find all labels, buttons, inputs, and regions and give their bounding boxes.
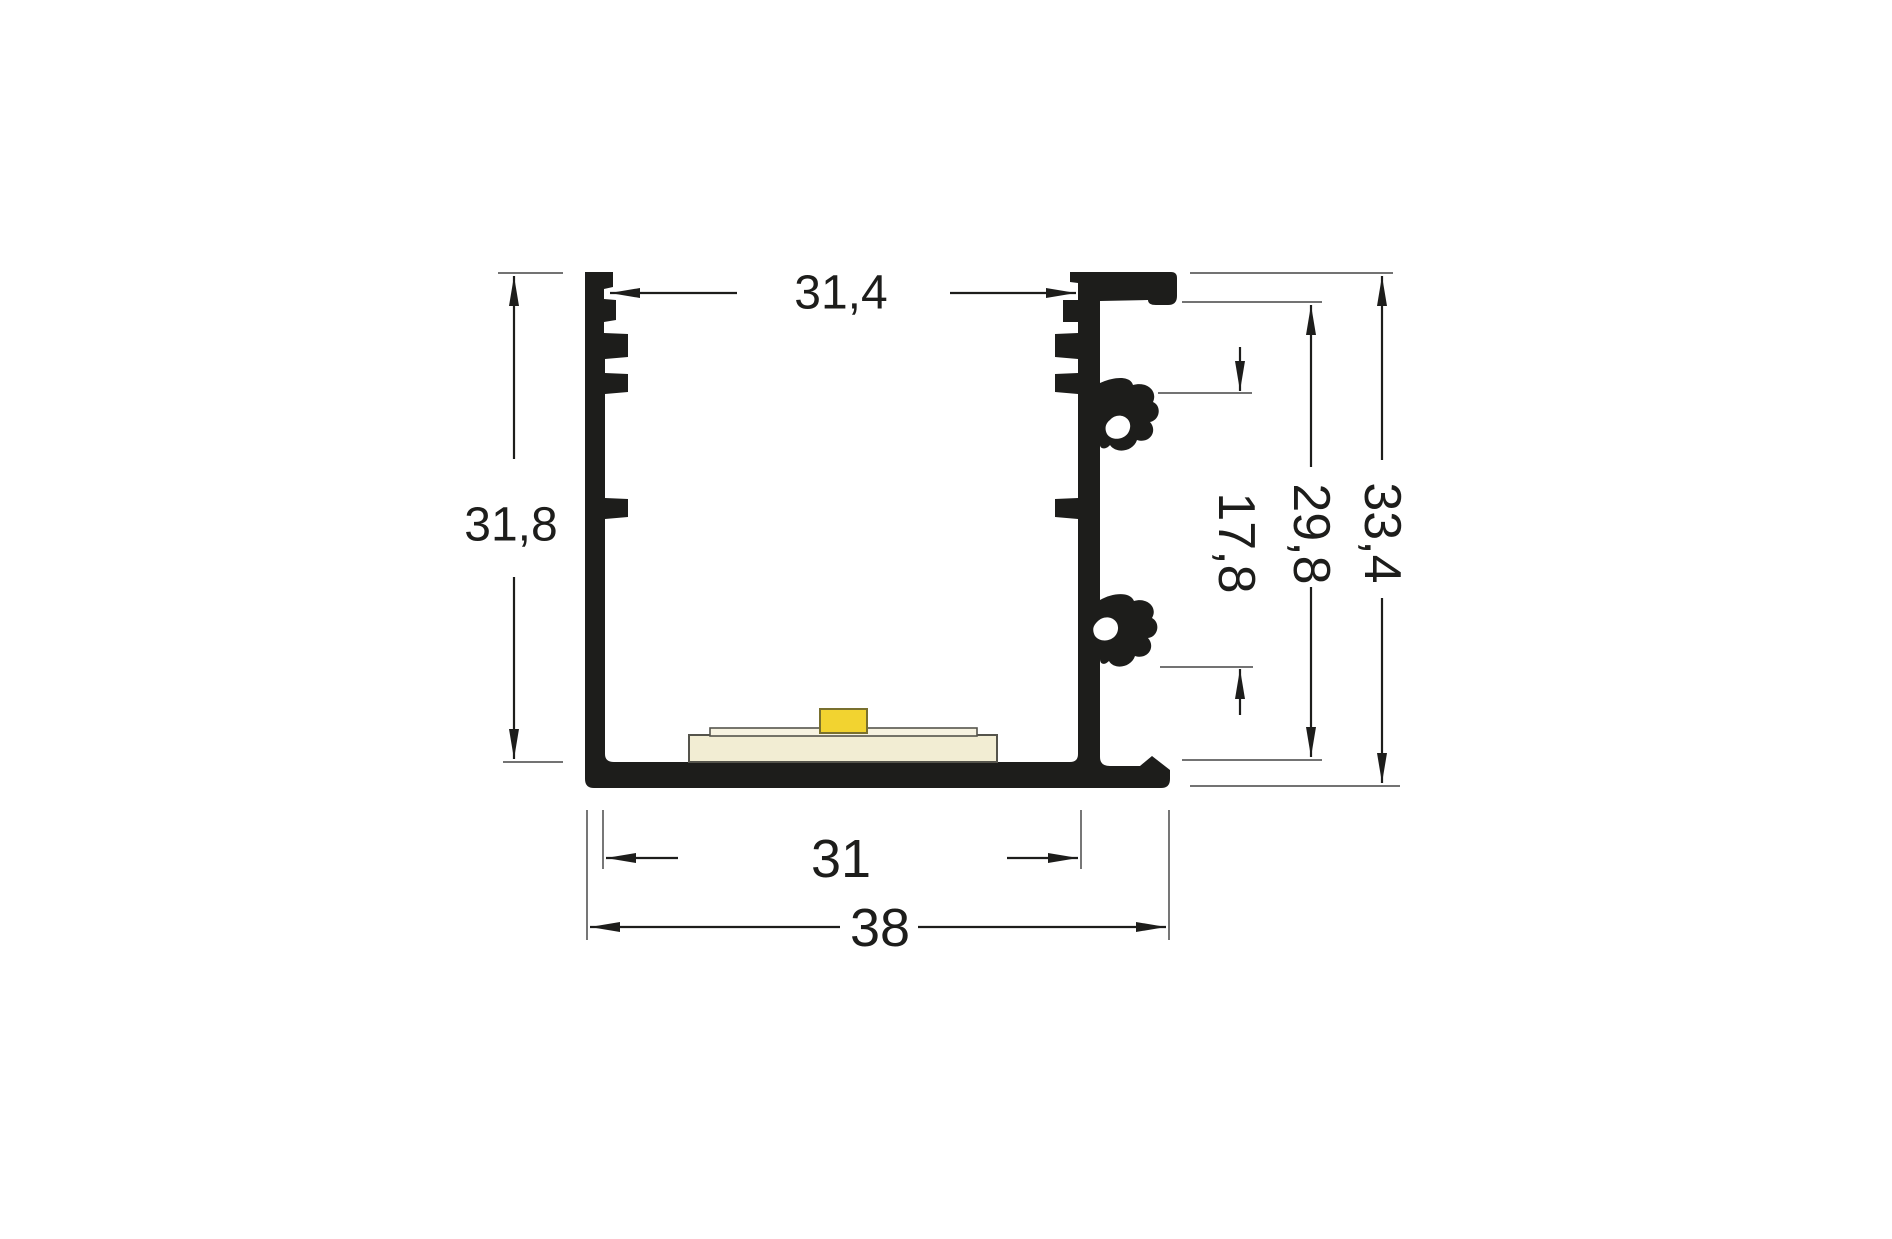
extension-lines (498, 273, 1400, 940)
profile-technical-drawing: 31,4 31,8 17,8 29,8 33,4 31 38 (0, 0, 1892, 1239)
dim-31-4-label: 31,4 (794, 267, 887, 320)
dim-33-4-label: 33,4 (1353, 482, 1411, 583)
profile-cross-section (585, 272, 1177, 788)
dim-29-8-label: 29,8 (1282, 483, 1340, 584)
dim-38-label: 38 (850, 898, 910, 958)
dim-31-label: 31 (811, 829, 871, 889)
led-pcb-base (689, 735, 997, 762)
dim-17-8-label: 17,8 (1207, 492, 1265, 593)
dimension-labels: 31,4 31,8 17,8 29,8 33,4 31 38 (464, 267, 1411, 959)
dimension-lines (514, 276, 1382, 927)
dim-31-8-label: 31,8 (464, 499, 557, 552)
led-chip (820, 709, 867, 733)
